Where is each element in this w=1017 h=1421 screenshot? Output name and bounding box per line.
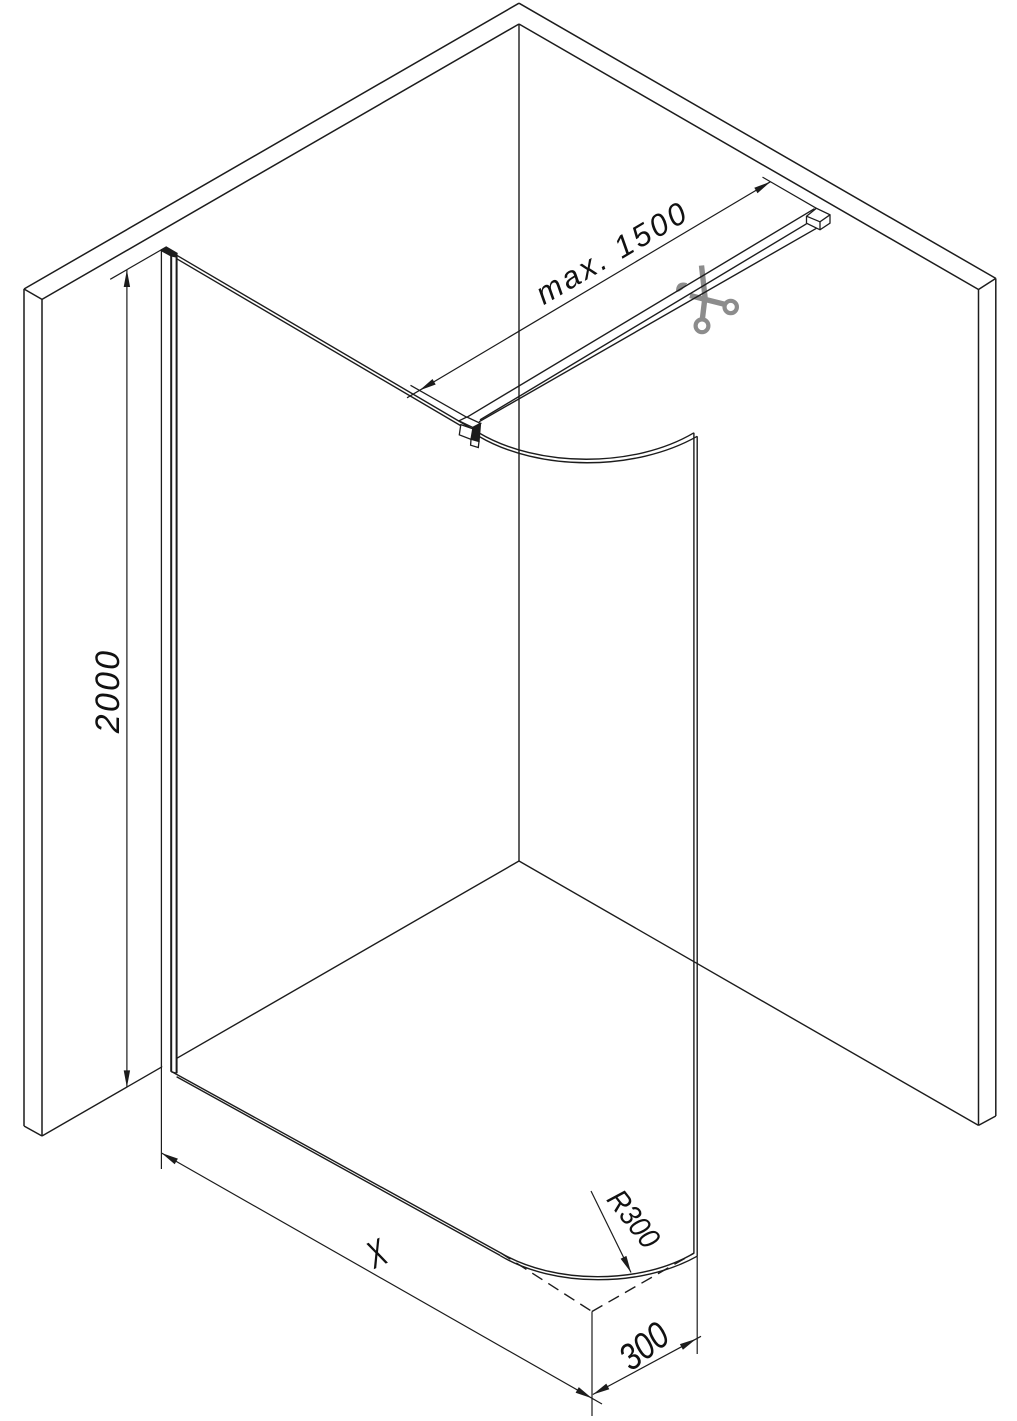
svg-text:2000: 2000 [89,649,127,734]
